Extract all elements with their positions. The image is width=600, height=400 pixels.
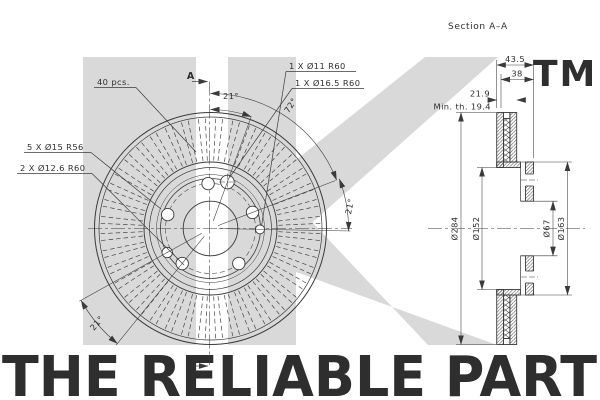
dim-min-thickness: Min. th. 19.4	[434, 102, 491, 112]
vane-line	[218, 296, 223, 338]
bolt-hole	[162, 208, 174, 220]
vane-line	[214, 296, 216, 339]
vane-line	[214, 118, 216, 161]
nk-watermark-n-block	[83, 57, 196, 345]
dim-total-width: 43.5	[505, 54, 525, 64]
label-holes-12-6: 2 X Ø12.6 R60	[20, 163, 85, 173]
vane-line	[198, 119, 203, 161]
section-marker-top: A	[187, 71, 195, 82]
vane-line	[218, 119, 223, 161]
right-plate-bottom	[510, 295, 517, 345]
watermark-tagline: THE RELIABLE PART	[2, 345, 597, 400]
dim-bore-diameter: Ø67	[542, 219, 552, 237]
section-solid-top	[497, 113, 538, 202]
right-plate-top	[510, 113, 517, 163]
dim-hat-width: 38	[511, 69, 522, 79]
label-bolt-holes: 5 X Ø15 R56	[27, 142, 84, 152]
vane-line	[198, 296, 203, 338]
section-title: Section A–A	[448, 22, 508, 32]
left-plate-bottom	[497, 290, 504, 345]
section-solid-bottom	[497, 256, 538, 345]
vent-notch-top	[504, 113, 510, 119]
brake-disc-technical-drawing: TM THE RELIABLE PART	[0, 0, 600, 400]
label-hole-16-5: 1 X Ø16.5 R60	[295, 78, 360, 88]
bolt-hole	[202, 177, 214, 189]
vane-line	[205, 296, 207, 339]
angle-label-right: 21°	[343, 198, 356, 216]
dim-thickness: 21.9	[470, 89, 490, 99]
bolt-hole	[233, 257, 245, 269]
vent-notch-bottom	[504, 339, 510, 345]
section-marker-bottom: A	[187, 370, 195, 381]
dim-inner-diameter: Ø163	[556, 217, 566, 241]
nk-watermark: TM THE RELIABLE PART	[2, 54, 597, 400]
angle-label-top: 21°	[223, 91, 239, 101]
vane-section-top	[504, 119, 510, 163]
left-plate-top	[497, 113, 504, 168]
label-vanes: 40 pcs.	[97, 77, 130, 87]
drawing-canvas: TM THE RELIABLE PART	[0, 0, 600, 400]
hat-flange-top	[497, 162, 521, 168]
dim-flange-diameter: Ø152	[471, 217, 481, 241]
vane-line	[205, 118, 207, 161]
dim-outer-diameter: Ø284	[450, 217, 460, 241]
trademark-text: TM	[533, 54, 597, 95]
label-hole-11: 1 X Ø11 R60	[289, 61, 346, 71]
vane-section-bottom	[504, 295, 510, 339]
hat-flange-bottom	[497, 290, 521, 296]
